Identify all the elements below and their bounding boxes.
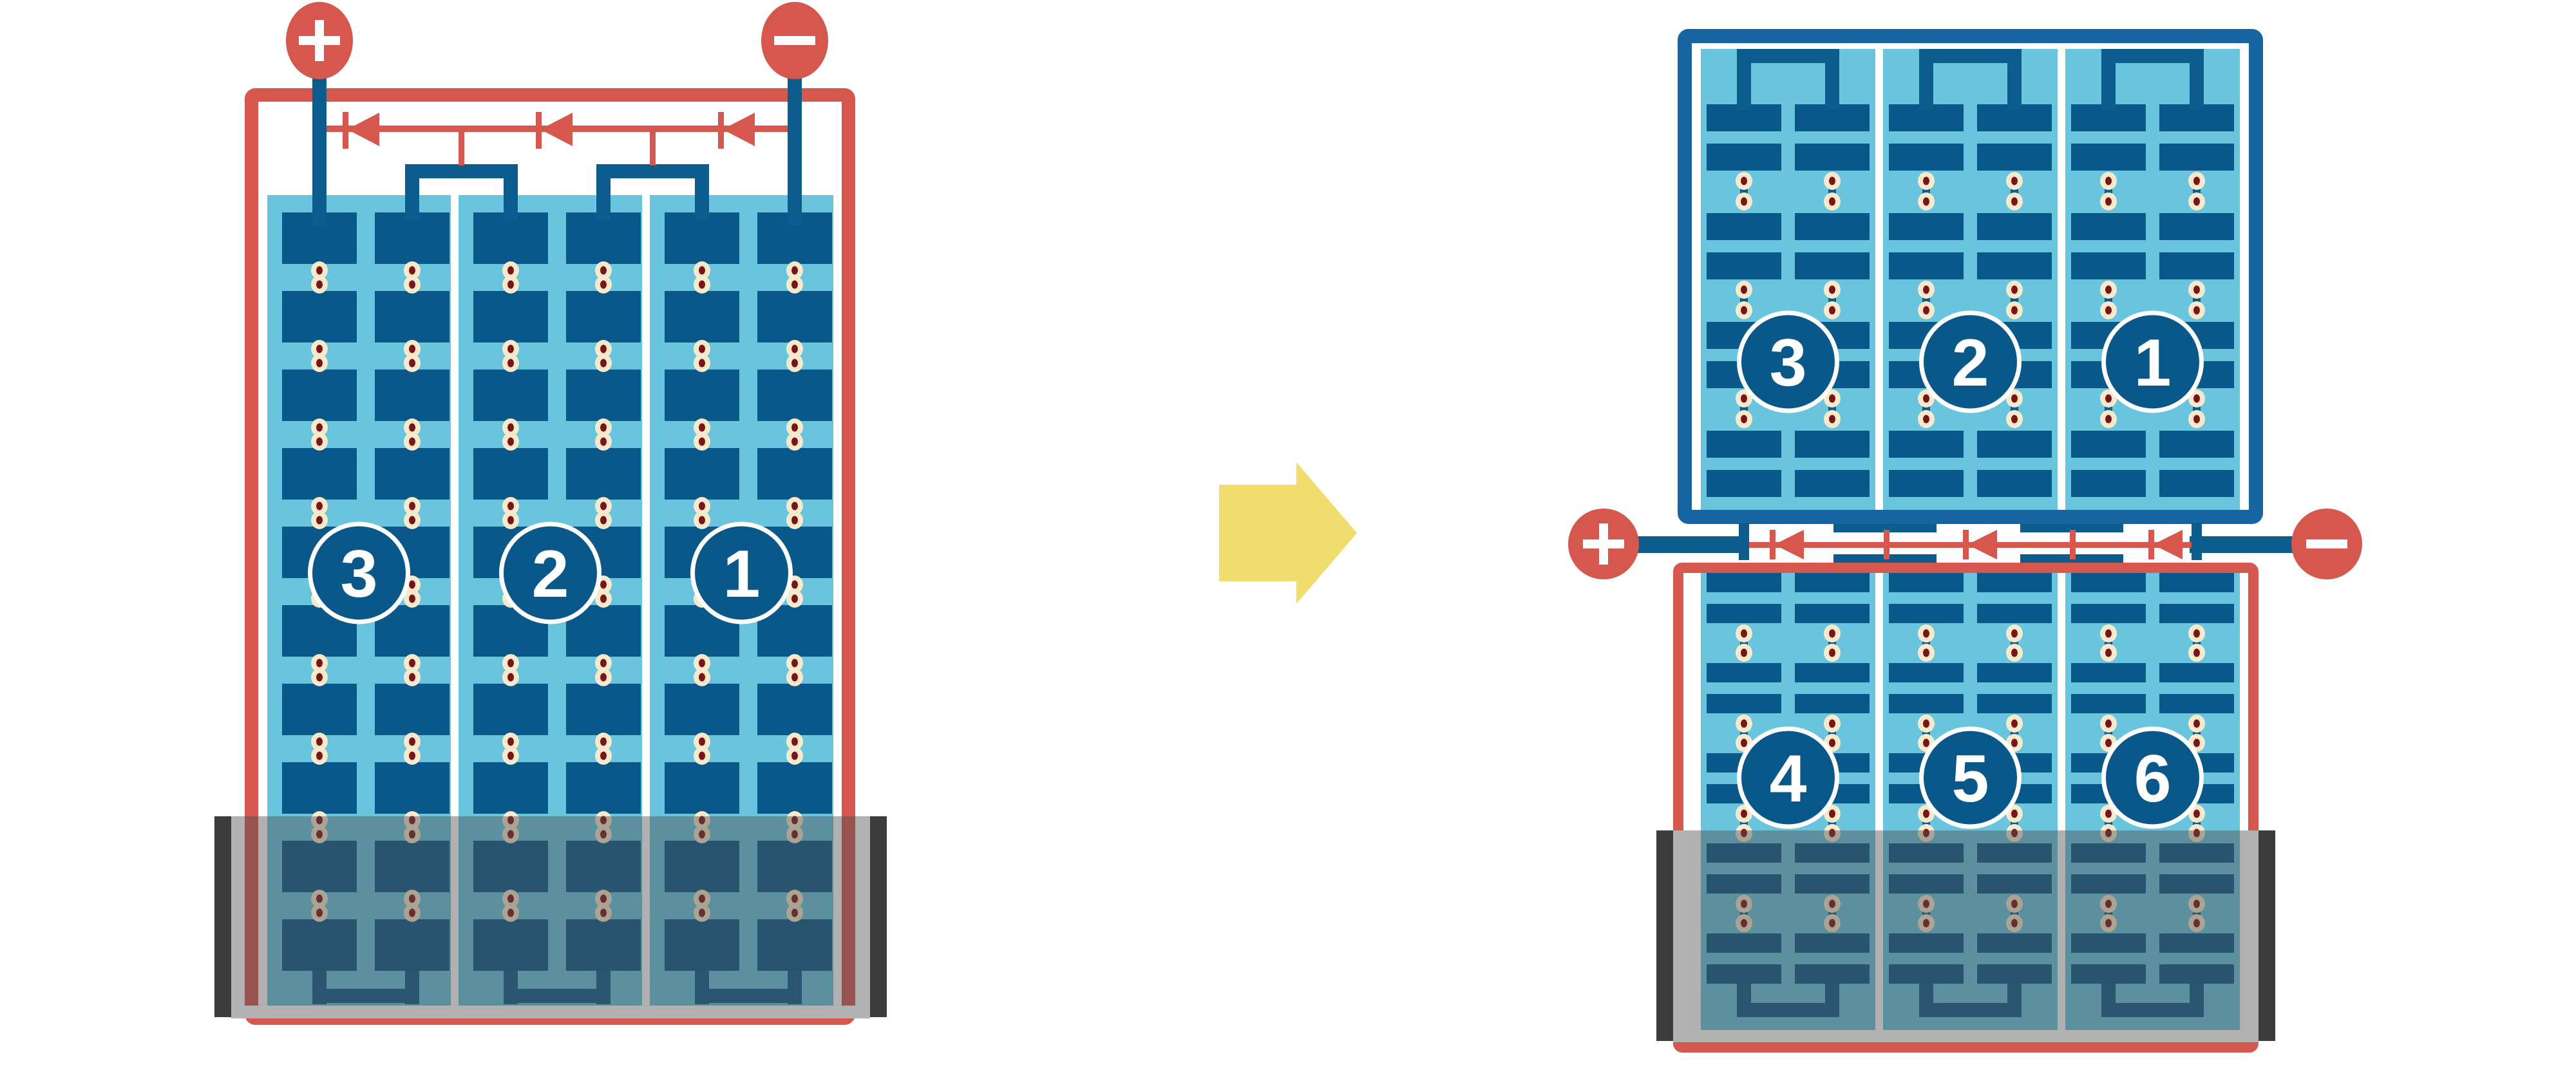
battery-cell xyxy=(1707,431,1781,458)
connector-dot-core xyxy=(600,345,607,353)
left-arrowhead xyxy=(1967,530,1997,559)
battery-cell xyxy=(1795,144,1870,171)
connector-dot-core xyxy=(316,752,323,760)
connector-dot-core xyxy=(507,345,514,353)
connector-dot-core xyxy=(2011,649,2018,657)
battery-cell xyxy=(665,762,739,814)
u-connector-bar xyxy=(1737,49,1839,63)
connector-dot-core xyxy=(791,673,798,682)
connector-dot-core xyxy=(1923,177,1929,185)
connector-dot-core xyxy=(2105,286,2112,294)
connector-dot-core xyxy=(600,581,607,589)
group-number-label: 3 xyxy=(1770,326,1807,400)
group-number-label: 5 xyxy=(1952,742,1989,816)
connector-dot-core xyxy=(600,659,607,668)
tray-rim xyxy=(231,1006,870,1018)
direction-tick xyxy=(2070,530,2076,559)
u-connector-leg xyxy=(1825,63,1839,109)
connector-dot-core xyxy=(1923,198,1929,206)
right-top-module: 321 xyxy=(1685,36,2256,532)
connector-dot-core xyxy=(1741,306,1747,315)
connector-dot-core xyxy=(791,595,798,603)
battery-cell xyxy=(1977,144,2052,171)
connector-dot-core xyxy=(2105,739,2112,747)
battery-cell xyxy=(1889,604,1964,623)
u-connector-leg xyxy=(1737,63,1751,109)
connector-dot-core xyxy=(2011,810,2018,818)
connector-dot-core xyxy=(409,267,415,275)
battery-cell xyxy=(282,762,357,814)
direction-tick xyxy=(343,112,348,149)
battery-cell xyxy=(1889,694,1964,713)
u-connector-bar xyxy=(1919,49,2022,63)
connector-dot-core xyxy=(1741,739,1747,747)
left-arrowhead xyxy=(1774,530,1804,559)
connector-dot-core xyxy=(2105,198,2112,206)
direction-tick xyxy=(718,112,724,149)
connector-dot-core xyxy=(600,752,607,760)
connector-dot-core xyxy=(1923,649,1929,657)
connector-dot-core xyxy=(2193,720,2200,728)
connector-dot-core xyxy=(600,738,607,746)
direction-tick xyxy=(1884,530,1889,559)
connector-dot-core xyxy=(1829,649,1835,657)
connector-dot-core xyxy=(2011,177,2018,185)
left-arrowhead xyxy=(723,113,755,146)
connector-dot-core xyxy=(316,738,323,746)
connector-dot-core xyxy=(2011,198,2018,206)
tray-clamp xyxy=(1656,830,1673,1041)
tray-shade xyxy=(1673,830,2259,1042)
connector-dot-core xyxy=(409,424,415,432)
connector-dot-core xyxy=(600,267,607,275)
minus-terminal xyxy=(761,2,828,79)
battery-cell xyxy=(1795,252,1870,279)
terminal-post xyxy=(2192,523,2202,560)
connector-dot-core xyxy=(699,673,705,682)
series-bridge-leg xyxy=(405,178,419,219)
battery-cell xyxy=(566,370,641,421)
connector-dot-core xyxy=(2105,720,2112,728)
connector-dot-core xyxy=(316,281,323,289)
battery-cell xyxy=(2071,663,2146,682)
connector-dot-core xyxy=(1829,720,1835,728)
connector-dot-core xyxy=(1741,198,1747,206)
connector-dot-core xyxy=(1741,720,1747,728)
battery-cell xyxy=(2159,252,2234,279)
connector-dot-core xyxy=(1741,286,1747,294)
connector-dot-core xyxy=(2105,306,2112,315)
transform-arrow-head xyxy=(1296,462,1357,604)
connector-dot-core xyxy=(791,752,798,760)
battery-cell xyxy=(1795,470,1870,497)
battery-tray xyxy=(214,816,887,1018)
battery-cell xyxy=(375,212,450,264)
battery-cell xyxy=(1707,663,1781,682)
battery-cell xyxy=(1707,604,1781,623)
connector-dot-core xyxy=(409,281,415,289)
battery-cell xyxy=(2159,604,2234,623)
connector-dot-core xyxy=(409,359,415,368)
battery-cell xyxy=(282,684,357,735)
battery-cell xyxy=(1795,431,1870,458)
connector-dot-core xyxy=(2193,286,2200,294)
connector-dot-core xyxy=(316,267,323,275)
u-connector-leg xyxy=(2101,63,2116,109)
connector-dot-core xyxy=(600,438,607,446)
connector-dot-core xyxy=(409,516,415,525)
terminal-post xyxy=(1739,523,1749,560)
connector-dot-core xyxy=(1829,415,1835,424)
battery-cell xyxy=(1707,213,1781,240)
battery-cell xyxy=(2159,213,2234,240)
connector-dot-core xyxy=(791,438,798,446)
battery-cell xyxy=(566,684,641,735)
connector-dot-core xyxy=(791,659,798,668)
tray-shade xyxy=(231,816,870,1018)
terminal-post xyxy=(788,76,802,225)
battery-cell xyxy=(1977,663,2052,682)
battery-cell xyxy=(2071,694,2146,713)
connector-dot-core xyxy=(699,281,705,289)
connector-dot-core xyxy=(699,424,705,432)
series-bridge-leg xyxy=(695,178,709,219)
connector-dot-core xyxy=(1923,306,1929,315)
battery-cell xyxy=(1795,694,1870,713)
connector-dot-core xyxy=(1829,177,1835,185)
tray-rim xyxy=(231,816,245,1018)
left-arrowhead xyxy=(2153,530,2183,559)
battery-cell xyxy=(665,684,739,735)
plus-icon xyxy=(315,20,324,61)
left-arrowhead xyxy=(540,113,573,146)
battery-cell xyxy=(1889,431,1964,458)
battery-cell xyxy=(375,684,450,735)
minus-icon xyxy=(2306,539,2347,548)
battery-cell xyxy=(665,212,739,264)
transform-arrow-body xyxy=(1219,485,1296,581)
connector-dot-core xyxy=(791,267,798,275)
battery-cell xyxy=(757,762,832,814)
diagram-canvas: 321321456 xyxy=(0,0,2576,1068)
connector-dot-core xyxy=(2193,810,2200,818)
connector-dot-core xyxy=(316,359,323,368)
connector-dot-core xyxy=(1923,286,1929,294)
series-bridge-bar xyxy=(405,164,518,178)
battery-cell xyxy=(375,370,450,421)
connector-dot-core xyxy=(1741,649,1747,657)
tray-rim xyxy=(1673,1030,2259,1042)
connector-dot-core xyxy=(1741,177,1747,185)
battery-cell xyxy=(2159,573,2234,592)
connector-dot-core xyxy=(1829,810,1835,818)
connector-dot-core xyxy=(1829,739,1835,747)
plus-icon xyxy=(1599,523,1608,565)
connector-dot-core xyxy=(2193,177,2200,185)
connector-dot-core xyxy=(2105,415,2112,424)
tray-clamp xyxy=(2259,830,2275,1041)
connector-dot-core xyxy=(2105,177,2112,185)
tray-rim xyxy=(2245,830,2259,1042)
battery-cell xyxy=(1707,694,1781,713)
connector-dot-core xyxy=(600,281,607,289)
battery-cell xyxy=(2071,252,2146,279)
battery-cell xyxy=(282,370,357,421)
plus-terminal xyxy=(286,2,353,79)
battery-cell xyxy=(1707,252,1781,279)
connector-dot-core xyxy=(409,738,415,746)
connector-dot-core xyxy=(791,281,798,289)
connector-dot-core xyxy=(507,359,514,368)
battery-cell xyxy=(2071,604,2146,623)
group-number-label: 1 xyxy=(2134,326,2172,400)
battery-cell xyxy=(1795,604,1870,623)
tray-rim xyxy=(1673,830,1687,1042)
connector-dot-core xyxy=(409,502,415,511)
connector-dot-core xyxy=(699,516,705,525)
u-connector-leg xyxy=(1919,63,1933,109)
u-connector-leg xyxy=(2007,63,2022,109)
connector-dot-core xyxy=(2011,739,2018,747)
connector-dot-core xyxy=(1829,198,1835,206)
connector-dot-core xyxy=(699,267,705,275)
connector-dot-core xyxy=(600,424,607,432)
battery-cell xyxy=(2071,573,2146,592)
connector-dot-core xyxy=(1741,395,1747,403)
connector-dot-core xyxy=(316,438,323,446)
tray-clamp xyxy=(214,816,231,1017)
connector-dot-core xyxy=(2011,286,2018,294)
connector-dot-core xyxy=(1923,720,1929,728)
connector-dot-core xyxy=(316,516,323,525)
connector-dot-core xyxy=(2105,649,2112,657)
connector-dot-core xyxy=(507,738,514,746)
connector-dot-core xyxy=(600,502,607,511)
connector-dot-core xyxy=(791,359,798,368)
group-number-label: 6 xyxy=(2134,742,2172,816)
terminal-post xyxy=(312,76,327,225)
battery-cell xyxy=(2159,694,2234,713)
battery-cell xyxy=(1889,573,1964,592)
connector-dot-core xyxy=(2105,810,2112,818)
connector-dot-core xyxy=(1923,630,1929,638)
transform-arrow xyxy=(1219,462,1357,604)
connector-dot-core xyxy=(1829,630,1835,638)
connector-dot-core xyxy=(1923,415,1929,424)
connector-dot-core xyxy=(699,438,705,446)
battery-cell xyxy=(757,684,832,735)
battery-cell xyxy=(2159,663,2234,682)
connector-dot-core xyxy=(1829,286,1835,294)
series-bridge-bar xyxy=(596,164,709,178)
group-number-label: 3 xyxy=(341,537,378,612)
minus-icon xyxy=(774,36,815,45)
connector-dot-core xyxy=(791,345,798,353)
battery-cell xyxy=(1977,604,2052,623)
connector-dot-core xyxy=(1741,810,1747,818)
group-number-label: 1 xyxy=(723,537,761,612)
battery-cell xyxy=(757,448,832,500)
battery-cell xyxy=(1707,144,1781,171)
connector-dot-core xyxy=(699,752,705,760)
battery-cell xyxy=(1977,694,2052,713)
battery-cell xyxy=(1795,663,1870,682)
battery-cell xyxy=(1889,213,1964,240)
connector-dot-core xyxy=(600,516,607,525)
battery-cell xyxy=(1795,573,1870,592)
connector-dot-core xyxy=(316,673,323,682)
connector-dot-core xyxy=(507,516,514,525)
connector-dot-core xyxy=(600,595,607,603)
battery-cell xyxy=(1977,213,2052,240)
group-number-label: 2 xyxy=(1952,326,1989,400)
connector-dot-core xyxy=(600,673,607,682)
battery-cell xyxy=(665,291,739,342)
connector-dot-core xyxy=(409,752,415,760)
connector-dot-core xyxy=(1829,306,1835,315)
battery-cell xyxy=(566,291,641,342)
terminal-bus xyxy=(1638,536,1741,553)
series-bridge-leg xyxy=(596,178,611,219)
battery-cell xyxy=(1707,470,1781,497)
connector-dot-core xyxy=(316,502,323,511)
battery-cell xyxy=(2071,470,2146,497)
connector-dot-core xyxy=(507,502,514,511)
u-connector-leg xyxy=(2190,63,2204,109)
connector-dot-core xyxy=(507,752,514,760)
connector-dot-core xyxy=(1923,810,1929,818)
battery-cell xyxy=(2071,431,2146,458)
battery-cell xyxy=(1977,573,2052,592)
battery-cell xyxy=(2071,213,2146,240)
connector-dot-core xyxy=(409,581,415,589)
connector-dot-core xyxy=(316,345,323,353)
connector-dot-core xyxy=(791,424,798,432)
battery-cell xyxy=(1889,470,1964,497)
connector-dot-core xyxy=(2011,720,2018,728)
connector-dot-core xyxy=(316,424,323,432)
connector-dot-core xyxy=(507,281,514,289)
connector-dot-core xyxy=(2011,395,2018,403)
connector-dot-core xyxy=(2011,306,2018,315)
u-connector-bar xyxy=(2101,49,2204,63)
tray-clamp xyxy=(870,816,887,1017)
connector-dot-core xyxy=(791,516,798,525)
battery-cell xyxy=(566,762,641,814)
connector-dot-core xyxy=(699,345,705,353)
battery-cell xyxy=(375,448,450,500)
battery-cell xyxy=(757,291,832,342)
battery-cell xyxy=(473,212,548,264)
connector-dot-core xyxy=(2193,630,2200,638)
battery-cell xyxy=(2159,431,2234,458)
battery-cell xyxy=(1889,663,1964,682)
battery-cell xyxy=(473,291,548,342)
diagram-svg: 321321456 xyxy=(0,0,2576,1068)
direction-drop-line xyxy=(650,132,656,165)
direction-tick xyxy=(536,112,542,149)
connector-dot-core xyxy=(2011,415,2018,424)
battery-cell xyxy=(375,291,450,342)
direction-drop-line xyxy=(459,132,464,165)
series-bridge-leg xyxy=(504,178,518,219)
terminal-bus xyxy=(2190,536,2293,553)
left-arrowhead xyxy=(347,113,379,146)
battery-cell xyxy=(2159,144,2234,171)
battery-cell xyxy=(282,291,357,342)
battery-cell xyxy=(2159,470,2234,497)
connector-dot-core xyxy=(2193,415,2200,424)
connector-dot-core xyxy=(507,438,514,446)
battery-cell xyxy=(1977,252,2052,279)
battery-tray-right xyxy=(1656,830,2275,1042)
connector-dot-core xyxy=(2011,630,2018,638)
connector-dot-core xyxy=(1829,395,1835,403)
left-battery: 321 xyxy=(214,2,887,1018)
battery-cell xyxy=(473,684,548,735)
group-number-label: 2 xyxy=(532,537,569,612)
battery-cell xyxy=(282,448,357,500)
connector-dot-core xyxy=(409,595,415,603)
connector-dot-core xyxy=(600,359,607,368)
connector-dot-core xyxy=(409,659,415,668)
connector-dot-core xyxy=(699,738,705,746)
battery-cell xyxy=(1707,573,1781,592)
connector-dot-core xyxy=(409,438,415,446)
connector-dot-core xyxy=(1741,415,1747,424)
connector-dot-core xyxy=(699,359,705,368)
battery-cell xyxy=(473,370,548,421)
connector-dot-core xyxy=(409,345,415,353)
group-number-label: 4 xyxy=(1770,742,1807,816)
battery-cell xyxy=(665,370,739,421)
connector-dot-core xyxy=(2193,306,2200,315)
connector-dot-core xyxy=(409,673,415,682)
battery-cell xyxy=(375,762,450,814)
connector-dot-core xyxy=(2193,395,2200,403)
connector-dot-core xyxy=(699,502,705,511)
connector-dot-core xyxy=(2193,649,2200,657)
connector-dot-core xyxy=(507,673,514,682)
connector-dot-core xyxy=(2193,739,2200,747)
battery-cell xyxy=(1889,144,1964,171)
battery-cell xyxy=(665,448,739,500)
battery-cell xyxy=(757,370,832,421)
connector-dot-core xyxy=(791,738,798,746)
connector-dot-core xyxy=(2105,630,2112,638)
battery-cell xyxy=(1977,470,2052,497)
battery-cell xyxy=(566,212,641,264)
connector-dot-core xyxy=(699,659,705,668)
plus-terminal xyxy=(1568,509,1639,579)
battery-cell xyxy=(473,762,548,814)
connector-dot-core xyxy=(1741,630,1747,638)
battery-cell xyxy=(1795,213,1870,240)
battery-cell xyxy=(1889,252,1964,279)
battery-cell xyxy=(473,448,548,500)
connector-dot-core xyxy=(316,659,323,668)
battery-cell xyxy=(566,448,641,500)
connector-dot-core xyxy=(2105,395,2112,403)
connector-dot-core xyxy=(1923,739,1929,747)
connector-dot-core xyxy=(1923,395,1929,403)
minus-terminal xyxy=(2291,509,2362,579)
connector-dot-core xyxy=(507,267,514,275)
battery-cell xyxy=(2071,144,2146,171)
connector-dot-core xyxy=(2193,198,2200,206)
connector-dot-core xyxy=(791,581,798,589)
connector-dot-core xyxy=(791,502,798,511)
